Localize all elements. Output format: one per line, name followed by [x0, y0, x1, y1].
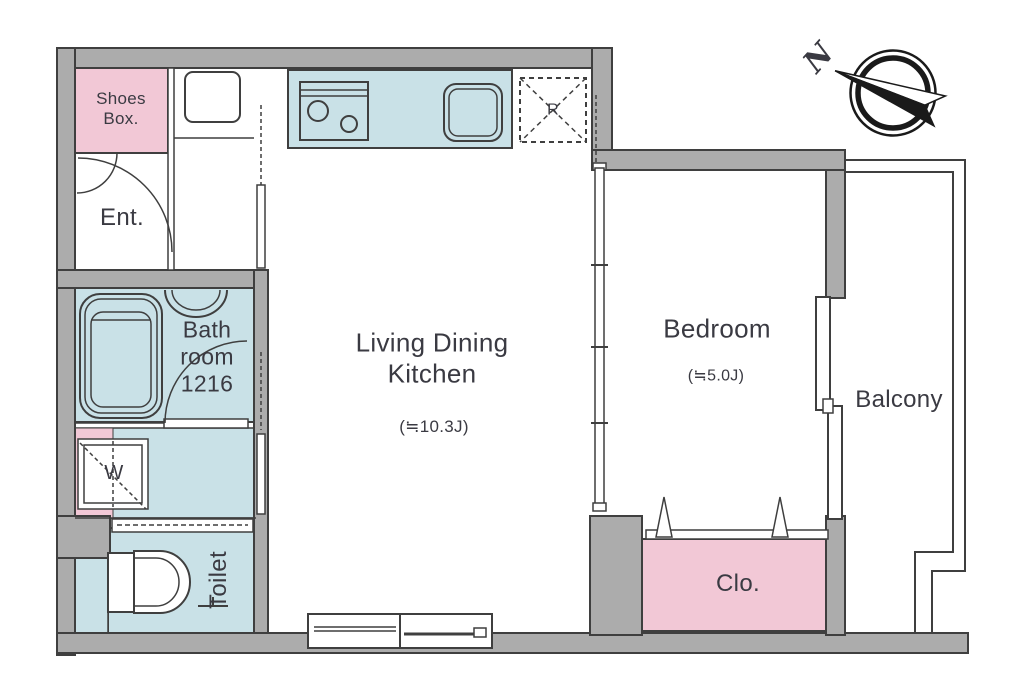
- closet-door-triangle-icon2: [772, 497, 788, 537]
- wall-top: [57, 48, 612, 68]
- balcony-window-panel-upper: [816, 297, 830, 410]
- balcony-label: Balcony: [855, 386, 942, 414]
- corridor-sliding-door: [257, 185, 265, 268]
- closet-door-triangle-icon: [656, 497, 672, 537]
- closet-label: Clo.: [716, 570, 760, 598]
- bathroom-label: Bath room 1216: [180, 316, 234, 397]
- ldk-size-label: (≒10.3J): [399, 417, 469, 437]
- wall-washroom-toilet: [57, 516, 110, 558]
- sliding-partition-door: [595, 168, 604, 505]
- wall-entrance-bath: [57, 270, 266, 288]
- refrigerator-space: [520, 78, 596, 168]
- ldk-label: Living Dining Kitchen: [356, 327, 509, 388]
- wall-left: [57, 48, 75, 655]
- wall-bedroom-top: [592, 150, 845, 170]
- bedroom-label: Bedroom: [663, 314, 771, 345]
- compass-north-icon: [829, 51, 945, 136]
- toilet-label: Toilet: [205, 551, 233, 609]
- ldk-window: [308, 614, 492, 648]
- wall-closet-left: [590, 516, 642, 635]
- bedroom-size-label: (≒5.0J): [688, 368, 744, 387]
- entrance-door-arc-small: [77, 153, 117, 193]
- shoes-box-label: Shoes Box.: [96, 89, 146, 129]
- closet-doors: [646, 497, 828, 539]
- balcony-window-latch: [823, 399, 833, 413]
- entrance-label: Ent.: [100, 204, 144, 232]
- toilet-side-nook: [73, 557, 108, 633]
- toilet-tank: [108, 553, 134, 612]
- partition-cap-bottom: [593, 503, 606, 511]
- ldk-window-latch: [474, 628, 486, 637]
- closet-sill: [646, 530, 828, 539]
- washroom-sliding-door: [257, 434, 265, 514]
- washer-label: W: [104, 462, 123, 486]
- utility-fixture: [185, 72, 240, 122]
- bathroom-door-sill: [164, 419, 248, 428]
- balcony-window-panel-lower: [828, 406, 842, 519]
- floor-plan: Shoes Box. Ent. Bath room 1216 W Toilet …: [0, 0, 1024, 696]
- wall-closet-right: [826, 516, 845, 635]
- ldk-bedroom-partition: [591, 163, 608, 511]
- refrigerator-label: R: [547, 102, 559, 121]
- floor-plan-drawing: [0, 0, 1024, 696]
- bedroom-balcony-window: [816, 297, 842, 519]
- wall-bedroom-right: [826, 170, 845, 298]
- toilet-bowl: [134, 551, 190, 613]
